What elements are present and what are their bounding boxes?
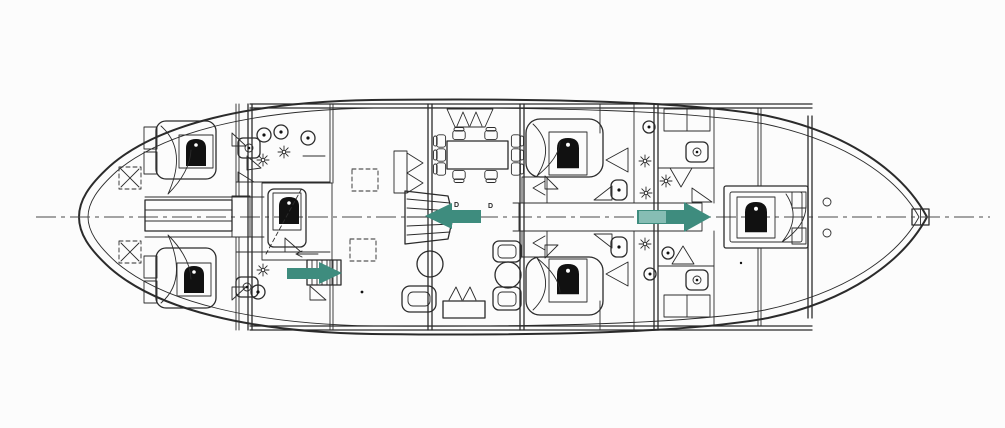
door-label: D xyxy=(488,203,493,210)
deck-plan-page: D D xyxy=(0,0,1005,428)
pillow-icon xyxy=(745,202,767,232)
arrow-highlight xyxy=(639,211,666,223)
drain-dot xyxy=(740,262,742,264)
paper-background xyxy=(0,0,1005,428)
drain-dot xyxy=(361,291,364,294)
pillow-icon xyxy=(184,266,204,293)
deck-plan-drawing: D D xyxy=(0,0,1005,428)
pillow-icon xyxy=(279,197,299,224)
door-label: D xyxy=(454,202,459,209)
pillow-icon xyxy=(557,264,579,294)
